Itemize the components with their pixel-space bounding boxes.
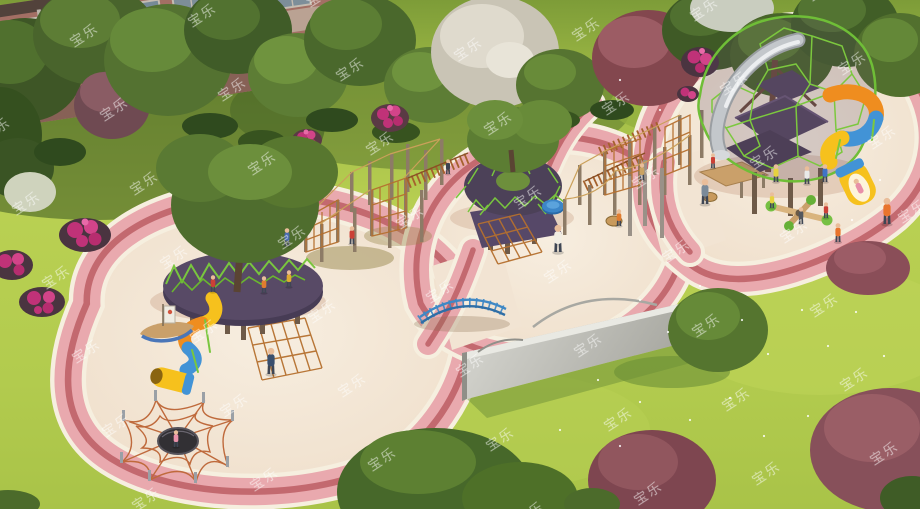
white-flower-bush [4, 172, 56, 212]
playground-aerial-render: 宝乐宝乐宝乐宝乐宝乐宝乐宝乐宝乐宝乐宝乐宝乐宝乐宝乐宝乐宝乐宝乐宝乐宝乐宝乐宝乐… [0, 0, 920, 509]
scene-svg [0, 0, 920, 509]
spinner-dish [542, 200, 564, 215]
